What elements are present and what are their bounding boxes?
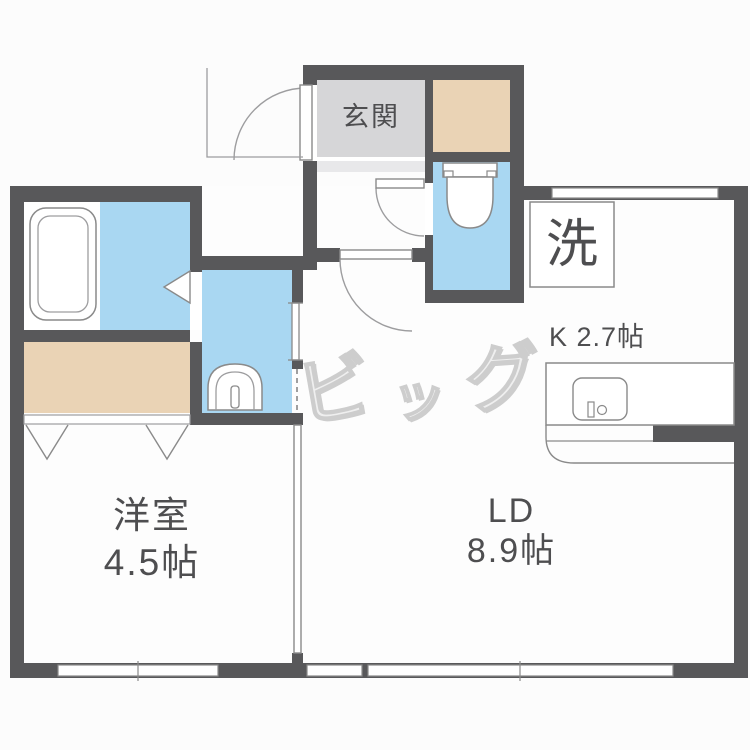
porch-line <box>207 68 303 157</box>
window-kitchen-top <box>552 188 718 198</box>
wall-bath-bottom <box>10 330 190 342</box>
wall-hall-bottom-right <box>412 248 433 262</box>
wall-kitchen-stub <box>653 425 734 442</box>
kitchen-label: K 2.7帖 <box>517 322 677 353</box>
company-watermark: ビ ッ グ <box>292 319 509 443</box>
washbasin-handle <box>231 386 239 408</box>
bedroom-label: 洋室 4.5帖 <box>58 492 246 586</box>
entrance-label: 玄関 <box>318 102 424 133</box>
watermark-char-2: ッ <box>389 351 448 434</box>
wall-under-closet <box>425 152 510 162</box>
wall-washroom-right-stub <box>292 270 303 303</box>
living-dining-label: LD 8.9帖 <box>429 491 594 571</box>
kitchen-faucet <box>588 402 594 417</box>
bedroom-size: 4.5帖 <box>58 539 246 586</box>
wall-outer-right <box>734 186 748 678</box>
entrance-step-gap <box>317 157 425 161</box>
entrance-door-arc <box>234 88 306 160</box>
entrance-step <box>317 161 425 172</box>
wall-washroom-top <box>190 256 317 270</box>
entrance-door-leaf <box>300 85 312 160</box>
wall-entrance-top <box>303 65 524 80</box>
bathtub-icon <box>30 208 96 320</box>
bedroom-name: 洋室 <box>58 492 246 539</box>
entrance-closet-floor <box>433 80 510 152</box>
toilet-tank-notch-left <box>444 171 453 177</box>
wall-genkan-closet-divider <box>425 80 433 162</box>
toilet-bowl <box>447 177 493 228</box>
watermark-char-1: ビ <box>287 325 378 443</box>
watermark-char-3: グ <box>461 316 542 428</box>
washer-label: 洗 <box>530 216 614 276</box>
floor-plan: 玄関 洗 K 2.7帖 LD 8.9帖 洋室 4.5帖 ビ ッ グ <box>0 0 750 750</box>
wall-washroom-bottom <box>190 413 303 425</box>
kitchen-drain <box>598 406 607 415</box>
window-ld-bottom-small <box>307 665 362 676</box>
wall-bath-top <box>10 186 202 202</box>
living-dining-name: LD <box>429 491 594 531</box>
toilet-door-leaf <box>376 179 424 188</box>
wall-toilet-bottom <box>425 290 524 303</box>
opening-bath-door <box>190 272 202 330</box>
opening-toilet-door <box>425 183 433 235</box>
bedroom-closet-floor <box>24 342 190 413</box>
wall-entrance-right <box>510 65 524 303</box>
toilet-tank-notch-right <box>487 171 496 177</box>
closet-door-track <box>24 415 190 424</box>
living-dining-size: 8.9帖 <box>429 531 594 571</box>
partition-bedroom-ld <box>294 425 301 653</box>
ld-door-leaf <box>340 250 412 259</box>
wall-closet-right <box>190 342 202 413</box>
bathroom-wet-floor <box>100 202 190 330</box>
wall-outer-left <box>10 186 24 678</box>
wall-partition-cap <box>292 653 303 663</box>
